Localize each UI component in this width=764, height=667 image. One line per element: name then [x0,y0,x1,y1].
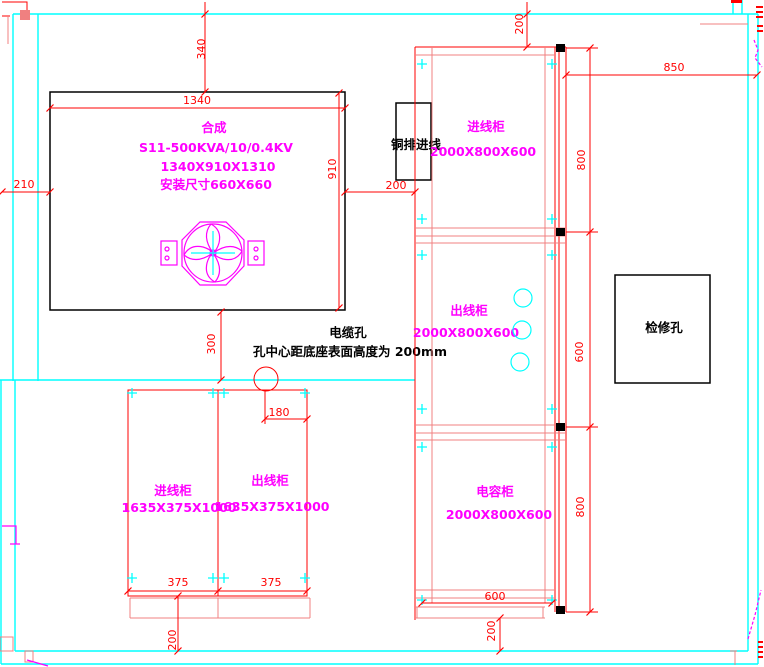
mounting-marks [556,44,565,614]
door-swing-bottom-right [748,590,761,639]
transformer-name-label: 合成 [201,120,227,135]
capacitor-cabinet-size: 2000X800X600 [446,507,553,522]
inspection-hole-block: 检修孔 [615,275,710,383]
wall-jamb-bottom-left [0,637,13,651]
bl-incoming-cabinet-label: 进线柜 [154,483,192,498]
capacitor-cabinet-label: 电容柜 [476,484,514,499]
door-symbol-left-edge [2,526,20,544]
inspection-hole-label: 检修孔 [645,320,683,335]
fan-mount-left [161,241,177,265]
incoming-cabinet-size: 2000X800X600 [430,144,537,159]
dim-600-mid: 600 [573,342,586,363]
transformer-size-label: 1340X910X1310 [161,159,276,174]
busbar-inlet-block: 铜排进线 [391,103,442,180]
dim-200-bottom-right: 200 [485,621,498,642]
dim-210: 210 [14,178,35,191]
bottom-left-cabinets: 进线柜 1635X375X1000 出线柜 1635X375X1000 [122,388,330,618]
cable-hole-title: 电缆孔 [329,325,367,340]
outgoing-cabinet-size: 2000X800X600 [413,325,520,340]
dim-375-right: 375 [261,576,282,589]
dim-200-top: 200 [513,14,526,35]
dim-375-left: 375 [168,576,189,589]
clipped-dim-text-right-top [756,7,763,31]
dim-300: 300 [205,334,218,355]
incoming-cabinet-label: 进线柜 [467,119,505,134]
cable-hole-circle [254,367,278,391]
transformer-block: 合成 S11-500KVA/10/0.4KV 1340X910X1310 安装尺… [50,92,345,310]
dim-800-bottom: 800 [574,497,587,518]
door-swing-bottom-left [27,660,48,666]
right-cabinet-column: 进线柜 2000X800X600 出线柜 2000X800X600 电容柜 20… [413,44,566,620]
dim-910: 910 [326,159,339,180]
dim-180: 180 [269,406,290,419]
fan-mount-right [248,241,264,265]
dim-800-top: 800 [575,150,588,171]
transformer-mount-label: 安装尺寸660X660 [160,177,272,192]
transformer-model-label: S11-500KVA/10/0.4KV [139,140,293,155]
cable-hole-note: 孔中心距底座表面高度为 200mm [253,344,447,359]
dim-200-gap: 200 [386,179,407,192]
dim-340: 340 [195,39,208,60]
clipped-dim-text-right-bottom [758,642,763,657]
dim-200-bottom-left: 200 [166,630,179,651]
dim-1340: 1340 [183,94,211,107]
cad-floorplan-drawing: 合成 S11-500KVA/10/0.4KV 1340X910X1310 安装尺… [0,0,764,667]
drawing-surface: 合成 S11-500KVA/10/0.4KV 1340X910X1310 安装尺… [0,0,764,667]
outgoing-cabinet-label: 出线柜 [450,303,488,318]
bl-outgoing-cabinet-label: 出线柜 [251,473,289,488]
dim-850: 850 [664,61,685,74]
dim-600-bottom: 600 [485,590,506,603]
bl-outgoing-cabinet-size: 1635X375X1000 [215,499,330,514]
cooling-fan-symbol [161,222,264,285]
